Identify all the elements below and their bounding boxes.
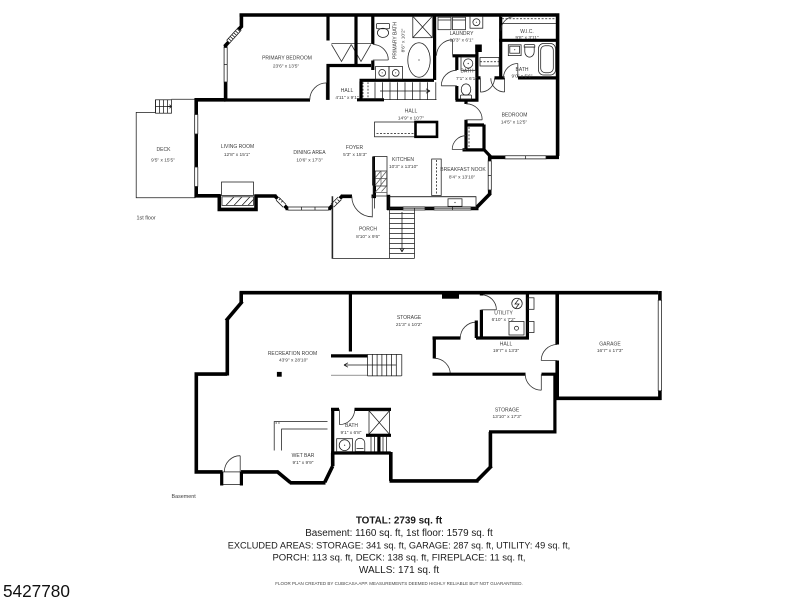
svg-text:14'5" x 12'5": 14'5" x 12'5"	[501, 120, 528, 126]
svg-text:STORAGE: STORAGE	[495, 408, 520, 414]
svg-text:13'10" x 17'3": 13'10" x 17'3"	[493, 414, 522, 420]
svg-text:7'1" x 6'1": 7'1" x 6'1"	[456, 76, 477, 82]
svg-text:HALL: HALL	[500, 342, 513, 348]
svg-text:8'4" x 13'10": 8'4" x 13'10"	[449, 175, 476, 181]
svg-text:23'6" x 13'5": 23'6" x 13'5"	[273, 64, 300, 70]
svg-text:10'6" x 17'3": 10'6" x 17'3"	[296, 158, 323, 164]
svg-text:STORAGE: STORAGE	[397, 315, 422, 321]
svg-text:HALL: HALL	[341, 88, 354, 94]
svg-text:LIVING ROOM: LIVING ROOM	[221, 144, 254, 150]
svg-text:21'3" x 10'2": 21'3" x 10'2"	[396, 322, 423, 328]
svg-text:KITCHEN: KITCHEN	[392, 157, 414, 163]
svg-text:PRIMARY BEDROOM: PRIMARY BEDROOM	[262, 56, 312, 62]
svg-text:UTILITY: UTILITY	[494, 311, 513, 317]
svg-text:4'11" x 9'1": 4'11" x 9'1"	[335, 95, 359, 101]
svg-text:12'8" x 15'1": 12'8" x 15'1"	[224, 152, 251, 158]
svg-text:WALLS: 171 sq. ft: WALLS: 171 sq. ft	[359, 565, 439, 576]
svg-text:Basement: Basement	[172, 494, 197, 500]
svg-text:16'7" x 17'3": 16'7" x 17'3"	[597, 348, 624, 354]
svg-text:5427780: 5427780	[3, 581, 70, 600]
svg-text:5'3" x 15'3": 5'3" x 15'3"	[343, 152, 367, 158]
svg-text:EXCLUDED AREAS: STORAGE: 341 s: EXCLUDED AREAS: STORAGE: 341 sq. ft, GAR…	[228, 540, 570, 550]
svg-text:BATH: BATH	[461, 69, 474, 75]
svg-text:W.I.C.: W.I.C.	[520, 29, 534, 35]
svg-text:DECK: DECK	[157, 147, 172, 153]
svg-text:43'9" x 28'10": 43'9" x 28'10"	[279, 358, 308, 364]
svg-text:DINING AREA: DINING AREA	[293, 150, 326, 156]
svg-text:6'10" x 7'2": 6'10" x 7'2"	[492, 317, 516, 323]
svg-text:FOYER: FOYER	[346, 145, 364, 151]
svg-text:10'3" x 13'10": 10'3" x 13'10"	[389, 164, 418, 170]
svg-text:WET BAR: WET BAR	[292, 453, 315, 459]
svg-text:9'1" x 6'8": 9'1" x 6'8"	[341, 430, 362, 436]
svg-text:9'0" x 5'6": 9'0" x 5'6"	[512, 74, 533, 80]
svg-text:9'8" x 3'11": 9'8" x 3'11"	[515, 35, 539, 41]
svg-text:HALL: HALL	[405, 109, 418, 115]
svg-text:PRIMARY BATH: PRIMARY BATH	[393, 22, 399, 59]
svg-text:FLOOR PLAN CREATED BY CUBICASA: FLOOR PLAN CREATED BY CUBICASA APP. MEAS…	[275, 581, 522, 586]
svg-text:RECREATION ROOM: RECREATION ROOM	[268, 351, 317, 357]
svg-text:BATH: BATH	[345, 423, 358, 429]
svg-text:BREAKFAST NOOK: BREAKFAST NOOK	[440, 167, 486, 173]
svg-text:14'9" x 10'7": 14'9" x 10'7"	[398, 116, 425, 122]
svg-text:BEDROOM: BEDROOM	[502, 113, 528, 119]
svg-text:8'10" x 9'6": 8'10" x 9'6"	[356, 234, 380, 240]
svg-text:10'3" x 6'1": 10'3" x 6'1"	[450, 38, 474, 44]
svg-text:19'7" x 13'3": 19'7" x 13'3"	[493, 348, 520, 354]
svg-text:Basement: 1160 sq. ft, 1st flo: Basement: 1160 sq. ft, 1st floor: 1579 s…	[305, 528, 493, 539]
svg-text:TOTAL: 2739 sq. ft: TOTAL: 2739 sq. ft	[356, 516, 443, 527]
svg-text:8'6" x 10'2": 8'6" x 10'2"	[401, 28, 407, 52]
svg-text:LAUNDRY: LAUNDRY	[450, 31, 474, 37]
svg-text:9'5" x 15'5": 9'5" x 15'5"	[151, 158, 175, 164]
svg-text:GARAGE: GARAGE	[599, 342, 621, 348]
svg-text:9'1" x 9'9": 9'1" x 9'9"	[293, 460, 314, 466]
svg-text:PORCH: 113 sq. ft, DECK: 138 s: PORCH: 113 sq. ft, DECK: 138 sq. ft, FIR…	[272, 553, 525, 564]
svg-text:BATH: BATH	[516, 67, 529, 73]
svg-text:PORCH: PORCH	[359, 227, 377, 233]
svg-text:1st floor: 1st floor	[137, 216, 156, 222]
